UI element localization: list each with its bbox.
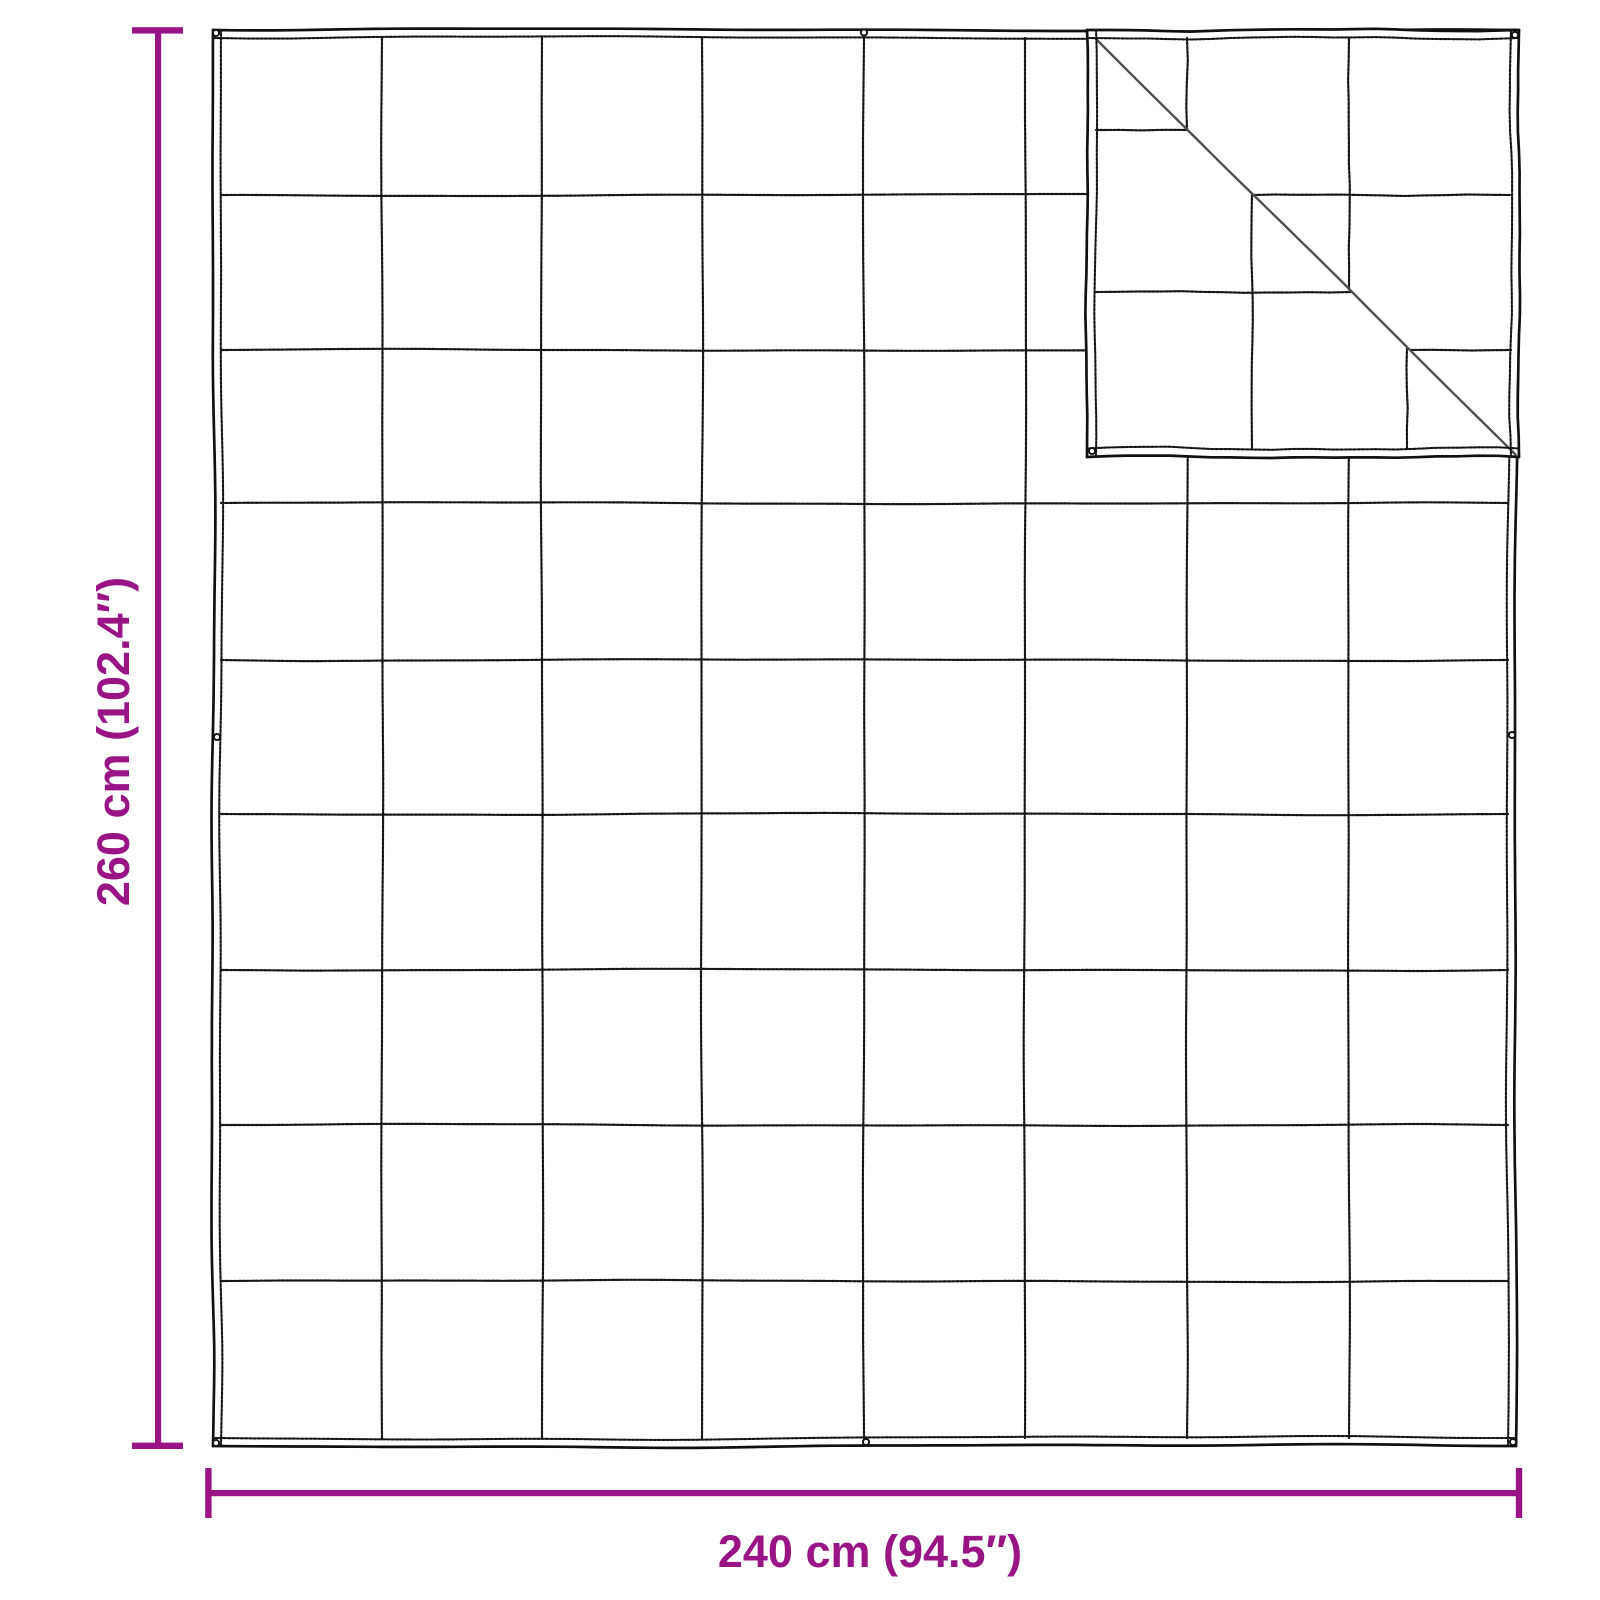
svg-text:260 cm (102.4″): 260 cm (102.4″) [88,577,139,906]
svg-text:240 cm (94.5″): 240 cm (94.5″) [718,1526,1022,1577]
